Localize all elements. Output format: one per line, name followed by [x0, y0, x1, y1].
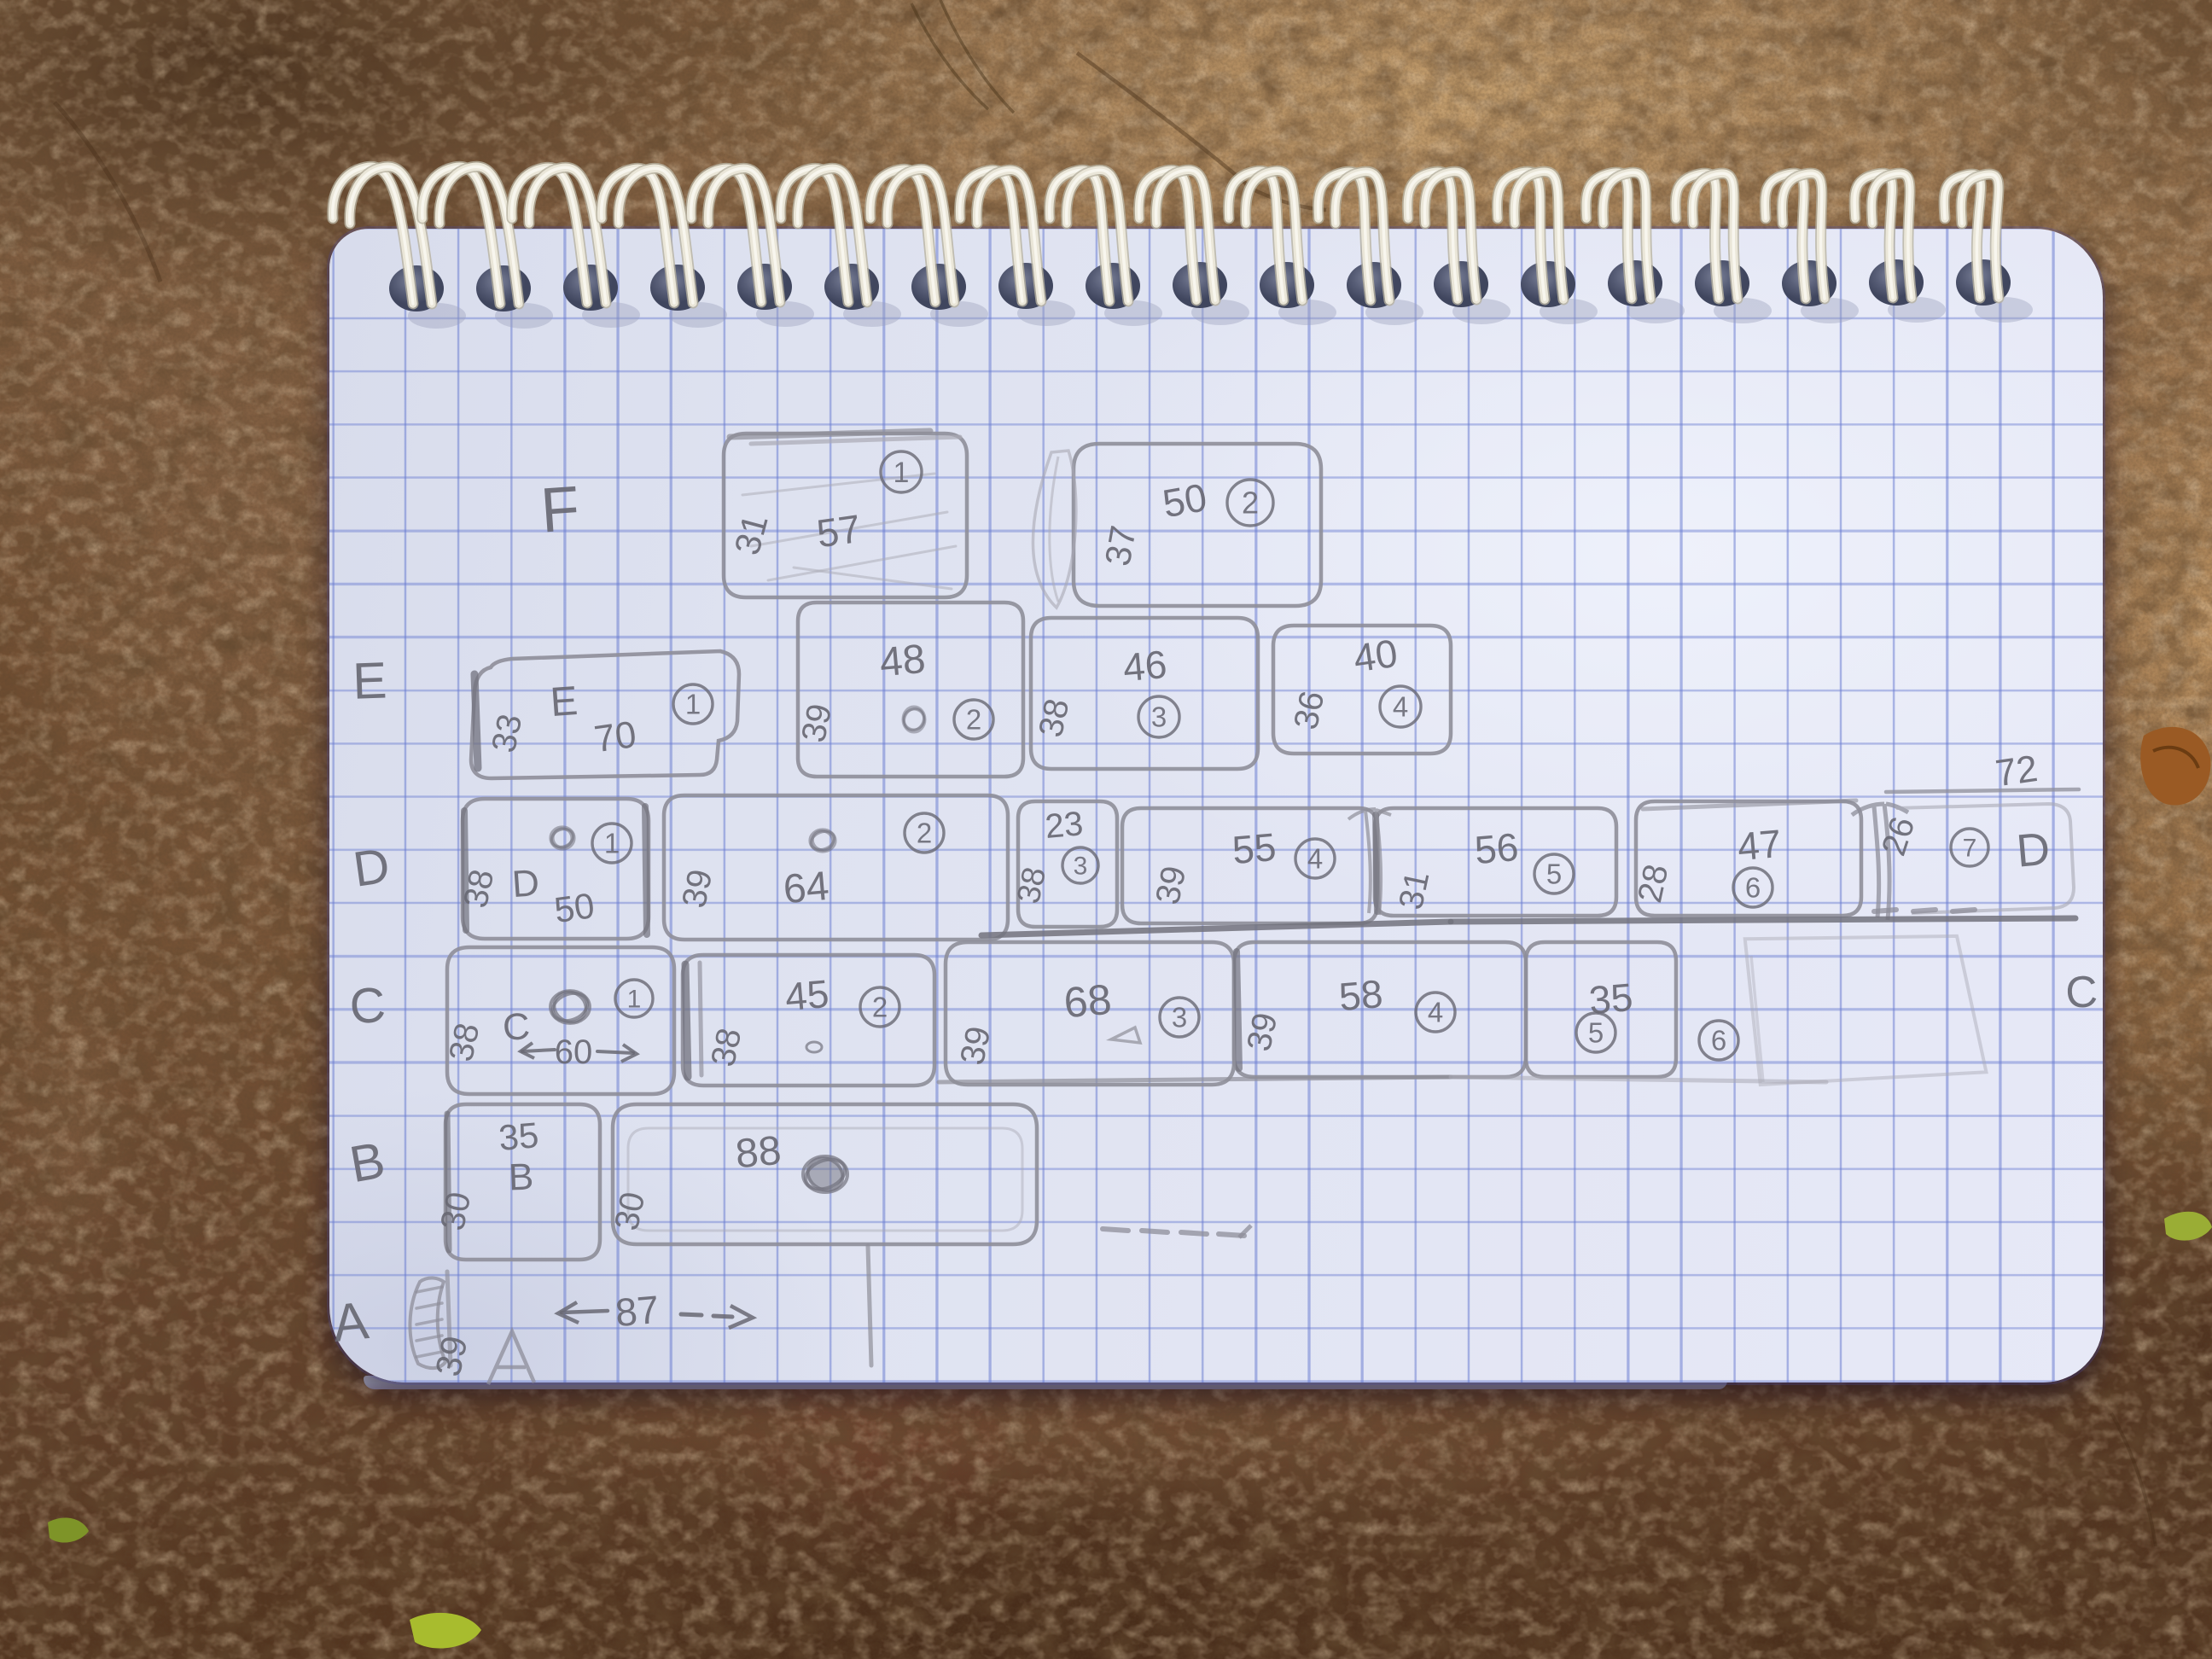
svg-text:39: 39 — [795, 701, 839, 746]
svg-text:72: 72 — [1993, 748, 2040, 795]
svg-text:23: 23 — [1044, 805, 1085, 846]
svg-text:3: 3 — [1151, 701, 1167, 733]
svg-text:48: 48 — [878, 637, 928, 685]
svg-text:35: 35 — [1587, 975, 1635, 1022]
svg-text:37: 37 — [1097, 522, 1144, 568]
svg-text:38: 38 — [704, 1025, 748, 1070]
svg-text:6: 6 — [1711, 1025, 1726, 1057]
svg-text:39: 39 — [675, 866, 719, 911]
svg-text:1: 1 — [627, 986, 642, 1014]
svg-text:35: 35 — [497, 1115, 540, 1158]
svg-text:60: 60 — [555, 1033, 593, 1071]
svg-text:39: 39 — [953, 1023, 998, 1068]
svg-text:64: 64 — [782, 864, 831, 912]
svg-text:50: 50 — [1160, 474, 1210, 526]
svg-text:38: 38 — [1032, 696, 1076, 741]
svg-text:56: 56 — [1473, 824, 1521, 872]
svg-text:E: E — [549, 678, 579, 725]
svg-text:5: 5 — [1546, 859, 1562, 890]
svg-text:D: D — [2014, 823, 2052, 876]
svg-text:3: 3 — [1074, 853, 1088, 881]
svg-text:47: 47 — [1736, 821, 1784, 869]
svg-text:2: 2 — [966, 704, 981, 736]
svg-text:3: 3 — [1172, 1002, 1187, 1033]
svg-text:1: 1 — [894, 457, 910, 489]
svg-text:39: 39 — [1240, 1010, 1284, 1055]
svg-text:68: 68 — [1062, 975, 1113, 1027]
svg-text:2: 2 — [872, 992, 888, 1023]
svg-text:88: 88 — [734, 1128, 783, 1177]
svg-text:2: 2 — [917, 818, 932, 849]
svg-text:38: 38 — [1010, 864, 1053, 906]
svg-text:40: 40 — [1351, 631, 1400, 681]
svg-text:4: 4 — [1393, 691, 1408, 723]
svg-text:7: 7 — [1963, 835, 1977, 863]
svg-text:2: 2 — [1242, 486, 1259, 521]
svg-text:46: 46 — [1121, 642, 1169, 690]
svg-text:4: 4 — [1307, 843, 1323, 875]
svg-text:28: 28 — [1631, 861, 1675, 906]
svg-text:B: B — [508, 1156, 534, 1199]
svg-text:1: 1 — [604, 828, 620, 859]
svg-text:55: 55 — [1231, 824, 1278, 872]
svg-text:87: 87 — [614, 1287, 661, 1335]
svg-text:31: 31 — [1392, 868, 1436, 913]
svg-text:D: D — [510, 862, 540, 905]
svg-text:45: 45 — [783, 971, 831, 1019]
svg-text:A: A — [330, 1291, 372, 1353]
svg-text:36: 36 — [1287, 688, 1331, 733]
svg-text:B: B — [346, 1131, 389, 1193]
svg-text:5: 5 — [1588, 1017, 1604, 1049]
svg-text:70: 70 — [591, 713, 638, 760]
svg-text:31: 31 — [726, 510, 775, 559]
svg-text:4: 4 — [1428, 997, 1443, 1028]
svg-text:26: 26 — [1875, 812, 1923, 860]
svg-text:38: 38 — [457, 866, 501, 911]
svg-text:C: C — [347, 977, 387, 1035]
svg-text:38: 38 — [442, 1020, 486, 1065]
svg-text:1: 1 — [685, 689, 701, 720]
svg-text:C: C — [501, 1005, 531, 1049]
svg-text:57: 57 — [814, 506, 864, 556]
svg-text:C: C — [2064, 967, 2099, 1018]
svg-text:F: F — [538, 473, 582, 546]
svg-text:D: D — [350, 838, 393, 898]
svg-text:33: 33 — [485, 711, 529, 756]
svg-text:39: 39 — [1149, 863, 1193, 908]
svg-text:30: 30 — [434, 1189, 478, 1234]
svg-text:50: 50 — [552, 885, 597, 930]
svg-text:E: E — [352, 651, 387, 709]
svg-text:58: 58 — [1337, 971, 1385, 1019]
svg-text:6: 6 — [1745, 872, 1761, 904]
svg-text:30: 30 — [608, 1189, 652, 1234]
svg-text:39: 39 — [428, 1332, 475, 1379]
